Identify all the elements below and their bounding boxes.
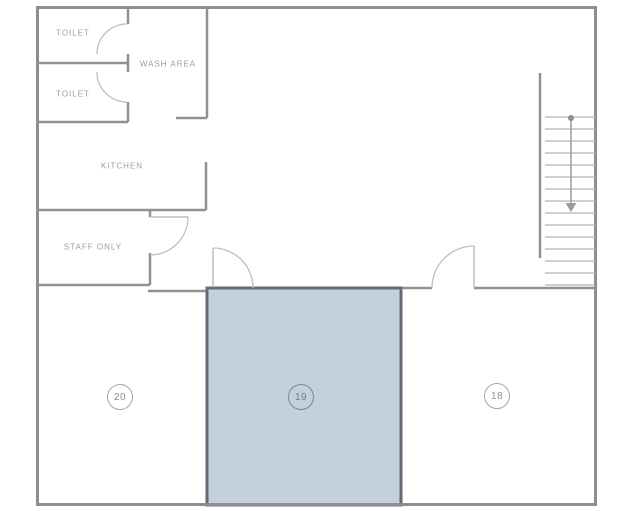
staircase-arrow-down-icon: [566, 203, 577, 212]
floor-plan-drawing: [0, 0, 640, 511]
room-label-wash-area: WASH AREA: [140, 60, 196, 69]
staircase-steps: [545, 117, 595, 285]
room-label-kitchen: KITCHEN: [101, 162, 143, 171]
room-label-toilet-top: TOILET: [56, 29, 90, 38]
unit-19-number: 19: [295, 392, 307, 403]
unit-18-badge[interactable]: 18: [484, 383, 510, 409]
room-label-toilet-bottom: TOILET: [56, 90, 90, 99]
staircase-start-dot-icon: [568, 115, 574, 121]
unit-19-badge[interactable]: 19: [288, 384, 314, 410]
unit-20-badge[interactable]: 20: [107, 384, 133, 410]
unit-20-number: 20: [114, 392, 126, 403]
floor-plan: TOILET TOILET WASH AREA KITCHEN STAFF ON…: [0, 0, 640, 511]
door-leaves: [150, 217, 474, 287]
unit-18-number: 18: [491, 391, 503, 402]
room-label-staff-only: STAFF ONLY: [64, 243, 122, 252]
